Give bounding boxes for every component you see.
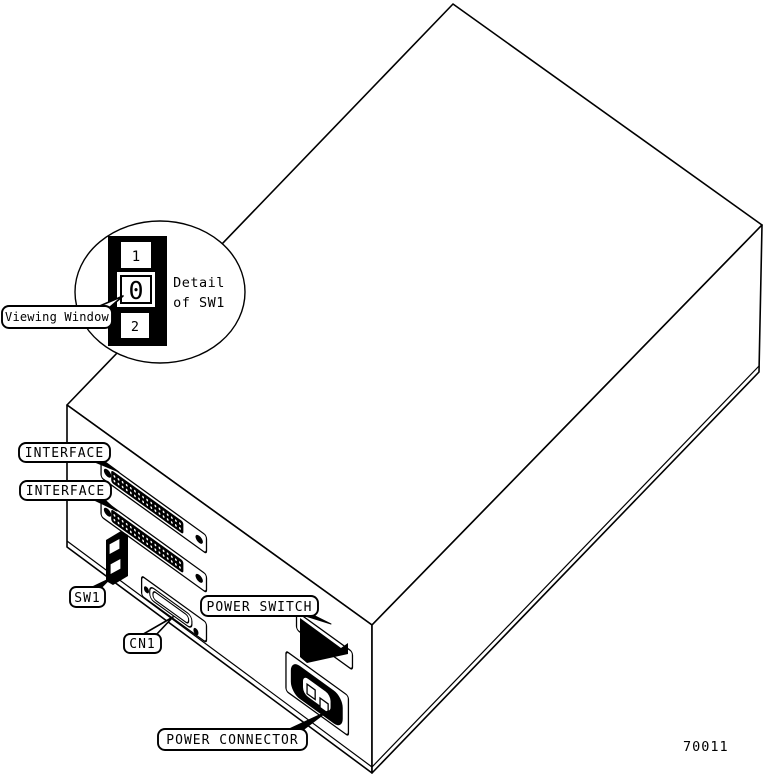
detail-balloon: 1 0 2 Detail of SW1	[75, 221, 245, 363]
detail-caption-line1: Detail	[173, 275, 225, 291]
cn1-label: CN1	[129, 637, 155, 652]
detail-digit-window: 0	[128, 276, 143, 305]
power-switch-label: POWER SWITCH	[207, 600, 313, 615]
interface-top-label: INTERFACE	[25, 446, 104, 461]
technical-figure: 1 0 2 Detail of SW1 Viewing Window INTER…	[0, 0, 764, 779]
sw1-detail-drawing: 1 0 2	[108, 236, 167, 346]
detail-digit-top: 1	[132, 249, 140, 265]
detail-caption-line2: of SW1	[173, 295, 225, 311]
interface-bottom-label: INTERFACE	[26, 484, 105, 499]
detail-digit-bottom: 2	[131, 319, 139, 335]
callout-cn1: CN1	[124, 617, 173, 653]
viewing-window-label: Viewing Window	[5, 310, 110, 324]
sw1-switch	[106, 531, 128, 585]
device-rear-view-diagram: 1 0 2 Detail of SW1 Viewing Window INTER…	[0, 0, 764, 779]
callout-sw1: SW1	[70, 578, 111, 607]
sw1-label: SW1	[74, 591, 100, 606]
power-connector-label: POWER CONNECTOR	[166, 733, 298, 748]
figure-number: 70011	[683, 739, 729, 755]
device-box	[67, 4, 762, 773]
